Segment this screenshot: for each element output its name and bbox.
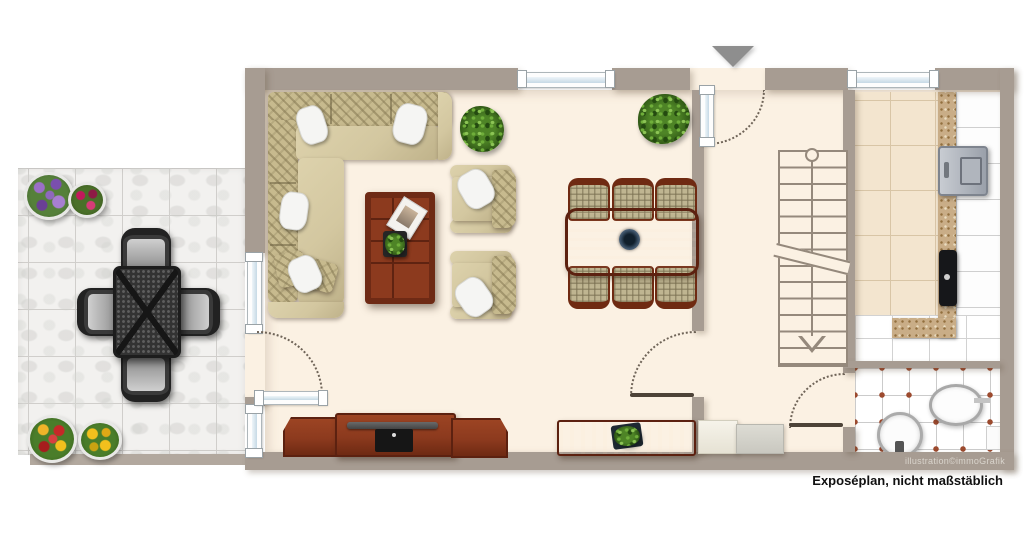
armchair-back (492, 256, 516, 314)
magazine-photo (396, 205, 418, 228)
tv-receiver (375, 429, 413, 452)
wall-right (1000, 68, 1014, 470)
faucet (944, 274, 950, 280)
flower-pot-magenta (68, 182, 106, 218)
toilet (929, 384, 983, 426)
floor-plan: illustration©immoGrafik Exposéplan, nich… (0, 0, 1024, 538)
sofa-seam (270, 182, 296, 184)
terrace-door-leaf (255, 391, 327, 405)
receiver-light (392, 433, 396, 437)
wall-kitchen-lower (843, 427, 855, 452)
armchair (448, 250, 518, 320)
tv-board-right (451, 418, 508, 458)
entrance-door-leaf (700, 86, 714, 146)
living-door-leaf (630, 393, 694, 397)
wall-top-left (245, 68, 518, 90)
credit-text: illustration©immoGrafik (700, 456, 1005, 466)
hall-cabinet (736, 424, 784, 454)
patio-chair-south (121, 352, 171, 402)
sideboard-plant (610, 422, 643, 450)
window-living-top (518, 72, 614, 88)
disclaimer-text: Exposéplan, nicht maßstäblich (700, 473, 1003, 488)
flower-pot-sunflower (78, 420, 122, 460)
wall-kitchen-bath-separator (843, 361, 1000, 368)
table-bowl (619, 229, 640, 250)
armchair-back (492, 170, 516, 228)
entrance-arrow-icon (712, 46, 754, 67)
coffee-table-plant (383, 231, 407, 257)
flower-pot-purple (24, 172, 74, 220)
wall-left-upper (245, 68, 265, 253)
sofa-arm-bottom (268, 302, 344, 318)
patio-table (113, 266, 181, 358)
flower-pot-red-yellow (27, 415, 77, 463)
toilet-connector (974, 398, 990, 403)
bathroom-door-leaf (789, 423, 843, 427)
kitchen-floor (855, 92, 938, 318)
wall-top-right (765, 68, 848, 90)
sofa-arm-right (438, 92, 452, 160)
kitchen-counter-return (892, 318, 956, 338)
tv-screen (347, 422, 438, 429)
sofa-seam (330, 94, 332, 124)
stove-handle (944, 162, 949, 178)
stove (938, 146, 988, 196)
potted-plant (460, 106, 504, 152)
armchair (448, 164, 518, 234)
tv-board-left (283, 417, 340, 457)
hall-cabinet (698, 420, 738, 454)
sofa-seam (270, 244, 296, 246)
stair-start-circle (805, 148, 819, 162)
appliance-row (956, 92, 1001, 315)
window-terrace-upper (247, 253, 262, 333)
stair-direction-arrow-inner (802, 336, 822, 348)
sofa-seam (390, 94, 392, 124)
staircase (778, 150, 848, 367)
stove-burner (960, 157, 982, 185)
kitchen-sink (939, 250, 957, 306)
window-kitchen-top (848, 72, 938, 88)
wall-top-mid (612, 68, 690, 90)
window-terrace-lower (247, 405, 262, 457)
